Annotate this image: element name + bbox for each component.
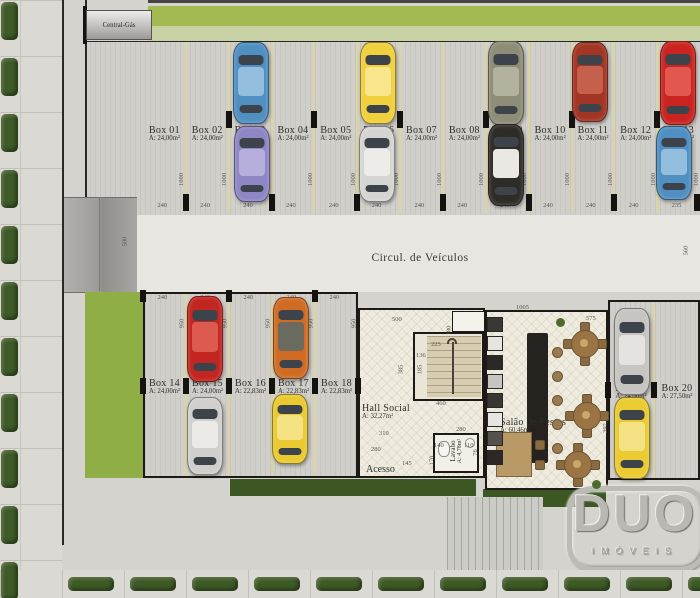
kitchen-appliance [487, 317, 503, 332]
hall-dimension: 136 [416, 352, 426, 359]
car-glass [667, 106, 690, 114]
plant-pot [556, 318, 565, 327]
stall-depth-dimension: 1000 [564, 173, 571, 186]
hall-dimension: 280 [371, 446, 381, 453]
stall-width-dimension: 240 [244, 294, 254, 301]
car-top-view [187, 296, 223, 382]
bar-stool [552, 347, 563, 358]
salao-dimension: 1005 [516, 304, 529, 311]
column-post [611, 194, 617, 211]
parking-box-label: Box 11A: 24,00m² [571, 125, 615, 142]
car-top-view [187, 397, 223, 475]
car-glass [193, 409, 218, 419]
car-glass [193, 310, 218, 321]
box-area: A: 24,00m² [185, 135, 229, 142]
car-glass [241, 185, 264, 192]
car-top-view [273, 297, 309, 379]
car-glass [666, 54, 691, 65]
column-post [526, 194, 532, 211]
car-roof [238, 67, 264, 96]
box-area: A: 24,00m² [528, 135, 572, 142]
column-post [226, 378, 232, 394]
column-post [605, 382, 611, 398]
kitchen-appliance [487, 431, 503, 446]
car-glass [662, 138, 687, 147]
box-area: A: 24,00m² [442, 135, 486, 142]
stall-width-dimension: 240 [329, 202, 339, 209]
hedge-bush [1, 562, 18, 598]
car-top-view [234, 126, 270, 202]
parking-box-label: Box 10A: 24,00m² [528, 125, 572, 142]
car-roof [493, 67, 519, 97]
box-area: A: 24,00m² [186, 388, 230, 395]
stall-depth-dimension: 950 [178, 319, 185, 329]
kitchen-appliance [487, 412, 503, 427]
column-post [312, 290, 318, 302]
car-top-view [572, 42, 608, 122]
car-roof [277, 415, 303, 439]
car-glass [365, 138, 390, 148]
hedge-bush [1, 338, 18, 376]
hall-dimension: 140 [434, 442, 444, 449]
column-post [183, 194, 189, 211]
column-post [226, 111, 232, 128]
column-post [354, 194, 360, 211]
bar-stool [552, 371, 563, 382]
stall-width-dimension: 240 [286, 202, 296, 209]
column-post [226, 290, 232, 302]
hall-dimension: 145 [402, 460, 412, 467]
car-glass [621, 375, 644, 384]
column-post [183, 378, 189, 394]
kitchen-appliance [487, 393, 503, 408]
car-glass [194, 363, 217, 371]
hedge-bush [564, 577, 610, 591]
car-glass [495, 106, 518, 114]
hedge-bush [130, 577, 176, 591]
parking-box-label: Box 16A: 22,83m² [229, 378, 273, 395]
stall-width-dimension: 240 [586, 202, 596, 209]
car-top-view [272, 394, 308, 464]
kitchen-appliance [487, 336, 503, 351]
stall-depth-dimension: 950 [350, 319, 357, 329]
column-post [654, 111, 660, 128]
car-glass [280, 360, 303, 368]
parking-box-label: Box 02A: 24,00m² [185, 125, 229, 142]
box-area: A: 24,00m² [143, 388, 187, 395]
bar-stool [552, 443, 563, 454]
car-top-view [359, 126, 395, 202]
car-glass [279, 310, 304, 320]
hall-dimension: 76 [472, 449, 479, 456]
car-glass [620, 410, 645, 420]
car-top-view [614, 308, 650, 395]
parking-box-label: Box 05A: 24,00m² [314, 125, 358, 142]
hedge-bush [1, 114, 18, 152]
salao-dimension: 575 [586, 315, 596, 322]
car-roof [278, 322, 304, 351]
hedge-bush [1, 282, 18, 320]
hedge-bush [1, 170, 18, 208]
plant-pot [592, 480, 601, 489]
parking-box-label: Box 18A: 22,83m² [315, 378, 359, 395]
car-glass [279, 448, 302, 455]
round-table-top [582, 411, 590, 419]
hedge-bush [1, 394, 18, 432]
hall-dimension: 500 [392, 316, 402, 323]
parking-box-label: Box 07A: 24,00m² [400, 125, 444, 142]
car-top-view [656, 126, 692, 200]
car-glass [239, 55, 264, 65]
parking-box-label: Box 20A: 27,50m² [655, 383, 699, 400]
floor-plan: Central-Gás Circul. de Veículos Hall Soc… [0, 0, 700, 598]
car-roof [364, 149, 390, 176]
box-area: A: 24,00m² [614, 135, 658, 142]
car-top-view [614, 397, 650, 479]
hedge-bush [626, 577, 672, 591]
column-post [269, 378, 275, 394]
car-glass [495, 187, 518, 195]
bar-stool [552, 419, 563, 430]
car-roof [665, 67, 691, 97]
car-glass [620, 322, 645, 333]
car-glass [240, 105, 263, 113]
column-post [651, 382, 657, 398]
hall-dimension: 185 [416, 365, 423, 375]
column-post [355, 378, 361, 394]
car-glass [366, 185, 389, 192]
round-table-top [573, 460, 581, 468]
car-roof [493, 149, 519, 178]
table-chair [535, 440, 545, 450]
bar-stool [552, 395, 563, 406]
stall-width-dimension: 240 [629, 202, 639, 209]
box-area: A: 22,83m² [229, 388, 273, 395]
hedge-bush [316, 577, 362, 591]
car-roof [619, 335, 645, 366]
stall-width-dimension: 235 [672, 202, 682, 209]
hedge-bush [68, 577, 114, 591]
car-glass [367, 105, 390, 113]
box-area: A: 24,00m² [271, 135, 315, 142]
box-area: A: 24,00m² [314, 135, 358, 142]
car-top-view [360, 42, 396, 124]
stall-width-dimension: 240 [330, 294, 340, 301]
car-glass [663, 183, 686, 190]
car-glass [578, 55, 603, 65]
parking-box-label: Box 04A: 24,00m² [271, 125, 315, 142]
car-glass [494, 137, 519, 147]
box-area: A: 24,00m² [571, 135, 615, 142]
stall-width-dimension: 240 [157, 202, 167, 209]
car-top-view [233, 42, 269, 124]
column-post [140, 290, 146, 302]
car-roof [577, 66, 603, 94]
hedge-bush [688, 577, 700, 591]
kitchen-appliance [487, 355, 503, 370]
car-roof [239, 149, 265, 176]
hedge-bush [440, 577, 486, 591]
hedge-bush [1, 58, 18, 96]
round-table-top [580, 339, 588, 347]
box-area: A: 22,83m² [315, 388, 359, 395]
car-glass [240, 138, 265, 148]
stall-depth-dimension: 950 [264, 319, 271, 329]
column-post [140, 378, 146, 394]
hall-dimension: 385 [397, 365, 404, 375]
stall-width-dimension: 240 [372, 202, 382, 209]
hall-dimension: 170 [428, 456, 435, 466]
car-top-view [488, 124, 524, 206]
stall-depth-dimension: 1000 [693, 173, 700, 186]
stall-width-dimension: 240 [543, 202, 553, 209]
hedge-bush [254, 577, 300, 591]
car-top-view [488, 41, 524, 125]
hedge-bush [1, 226, 18, 264]
plan-dynamic-layer: Box 01A: 24,00m²2401000Box 02A: 24,00m²2… [0, 0, 700, 598]
hedge-bush [378, 577, 424, 591]
parking-box-label: Box 14A: 24,00m² [143, 378, 187, 395]
car-glass [366, 55, 391, 65]
car-top-view [660, 41, 696, 125]
parking-box-label: Box 08A: 24,00m² [442, 125, 486, 142]
car-glass [579, 104, 602, 112]
column-post [694, 194, 700, 211]
car-glass [278, 405, 303, 414]
car-roof [365, 67, 391, 96]
column-post [312, 378, 318, 394]
stall-width-dimension: 240 [158, 294, 168, 301]
table-chair [535, 460, 545, 470]
hall-dimension: 180 [445, 326, 452, 336]
stall-width-dimension: 240 [200, 202, 210, 209]
column-post [269, 194, 275, 211]
stall-width-dimension: 240 [415, 202, 425, 209]
car-roof [661, 149, 687, 175]
stall-width-dimension: 240 [457, 202, 467, 209]
car-roof [192, 421, 218, 448]
kitchen-appliance [487, 374, 503, 389]
hall-dimension: 280 [456, 426, 466, 433]
parking-box-label: Box 12A: 24,00m² [614, 125, 658, 142]
stall-width-dimension: 240 [243, 202, 253, 209]
hedge-bush [502, 577, 548, 591]
box-area: A: 24,00m² [142, 135, 186, 142]
hedge-bush [1, 506, 18, 544]
car-glass [621, 460, 644, 468]
column-post [397, 111, 403, 128]
car-roof [192, 322, 218, 352]
hall-dimension: 225 [431, 341, 441, 348]
hall-dimension: 460 [436, 400, 446, 407]
parking-box-label: Box 17A: 22,83m² [272, 378, 316, 395]
box-area: A: 24,00m² [400, 135, 444, 142]
column-post [440, 194, 446, 211]
kitchen-appliance [487, 450, 503, 465]
box-area: A: 27,50m² [655, 393, 699, 400]
car-glass [194, 457, 217, 465]
hedge-bush [1, 450, 18, 488]
hedge-bush [1, 2, 18, 40]
parking-box-label: Box 01A: 24,00m² [142, 125, 186, 142]
car-glass [494, 54, 519, 65]
column-post [311, 111, 317, 128]
hedge-bush [192, 577, 238, 591]
car-roof [619, 422, 645, 451]
hall-dimension: 310 [379, 430, 389, 437]
